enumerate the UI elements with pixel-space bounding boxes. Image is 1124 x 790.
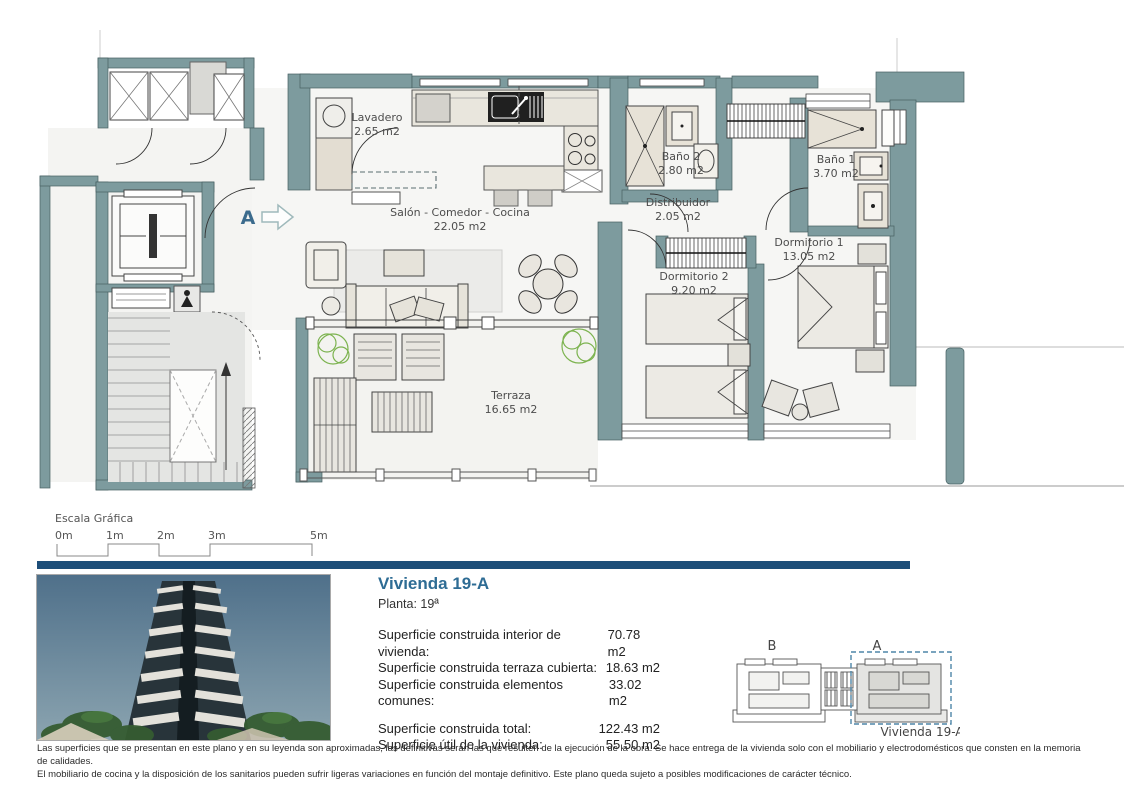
room-area-dormitorio2: 9.20 m2 bbox=[671, 284, 717, 297]
staircase bbox=[108, 312, 260, 488]
building-photo bbox=[37, 575, 330, 740]
scale-tick-1: 1m bbox=[106, 529, 124, 542]
room-area-distribuidor: 2.05 m2 bbox=[655, 210, 701, 223]
surface-row: Superficie construida terraza cubierta: … bbox=[378, 660, 660, 677]
scale-tick-0: 0m bbox=[55, 529, 73, 542]
scale-tick-4: 5m bbox=[310, 529, 328, 542]
page: A Lavadero 2.65 m2 Salón - Comedor - Coc… bbox=[0, 0, 1124, 790]
room-label-distribuidor: Distribuidor bbox=[646, 196, 711, 209]
surface-value: 70.78 m2 bbox=[608, 627, 660, 660]
floor-label: Planta: 19ª bbox=[378, 597, 678, 611]
surface-label: Superficie construida interior de vivien… bbox=[378, 627, 608, 660]
surface-value: 33.02 m2 bbox=[609, 677, 660, 710]
surface-label: Superficie construida terraza cubierta: bbox=[378, 660, 597, 677]
entrance-marker-label: A bbox=[241, 207, 256, 229]
room-area-bano1: 3.70 m2 bbox=[813, 167, 859, 180]
room-area-terraza: 16.65 m2 bbox=[485, 403, 538, 416]
surface-label: Superficie construida elementos comunes: bbox=[378, 677, 609, 710]
key-plan-caption: Vivienda 19-A bbox=[880, 725, 960, 739]
room-label-dormitorio2: Dormitorio 2 bbox=[659, 270, 728, 283]
room-area-salon: 22.05 m2 bbox=[434, 220, 487, 233]
key-plan-unit-b-label: B bbox=[768, 639, 777, 654]
room-area-lavadero: 2.65 m2 bbox=[354, 125, 400, 138]
room-label-terraza: Terraza bbox=[490, 389, 531, 402]
surface-row: Superficie construida elementos comunes:… bbox=[378, 677, 660, 710]
room-label-lavadero: Lavadero bbox=[352, 111, 403, 124]
elevator-icon bbox=[112, 190, 194, 281]
surface-value: 18.63 m2 bbox=[606, 660, 660, 677]
scale-tick-3: 3m bbox=[208, 529, 226, 542]
key-plan-building bbox=[733, 659, 947, 722]
surface-row: Superficie construida interior de vivien… bbox=[378, 627, 660, 660]
letterboxes bbox=[112, 286, 200, 312]
disclaimer-line-1: Las superficies que se presentan en este… bbox=[37, 742, 1089, 768]
scale-tick-2: 2m bbox=[157, 529, 175, 542]
section-divider bbox=[37, 561, 910, 569]
room-label-salon: Salón - Comedor - Cocina bbox=[390, 206, 530, 219]
room-area-dormitorio1: 13.05 m2 bbox=[783, 250, 836, 263]
room-area-bano2: 2.80 m2 bbox=[658, 164, 704, 177]
disclaimer-line-2: El mobiliario de cocina y la disposición… bbox=[37, 768, 1089, 781]
unit-title: Vivienda 19-A bbox=[378, 574, 678, 594]
room-label-bano2: Baño 2 bbox=[662, 150, 700, 163]
key-plan: B A Vivienda 19-A bbox=[725, 628, 960, 740]
scale-bar: Escala Gráfica 0m 1m 2m 3m 5m bbox=[55, 512, 328, 556]
surface-value: 122.43 m2 bbox=[599, 721, 660, 738]
disclaimer: Las superficies que se presentan en este… bbox=[37, 742, 1089, 781]
room-label-bano1: Baño 1 bbox=[817, 153, 855, 166]
surface-label: Superficie construida total: bbox=[378, 721, 531, 738]
scale-title: Escala Gráfica bbox=[55, 512, 133, 525]
room-label-dormitorio1: Dormitorio 1 bbox=[774, 236, 843, 249]
floor-plan: A Lavadero 2.65 m2 Salón - Comedor - Coc… bbox=[0, 0, 1124, 560]
surface-row: Superficie construida total: 122.43 m2 bbox=[378, 721, 660, 738]
info-panel: Vivienda 19-A Planta: 19ª Superficie con… bbox=[378, 574, 678, 754]
surface-rows: Superficie construida interior de vivien… bbox=[378, 627, 660, 710]
